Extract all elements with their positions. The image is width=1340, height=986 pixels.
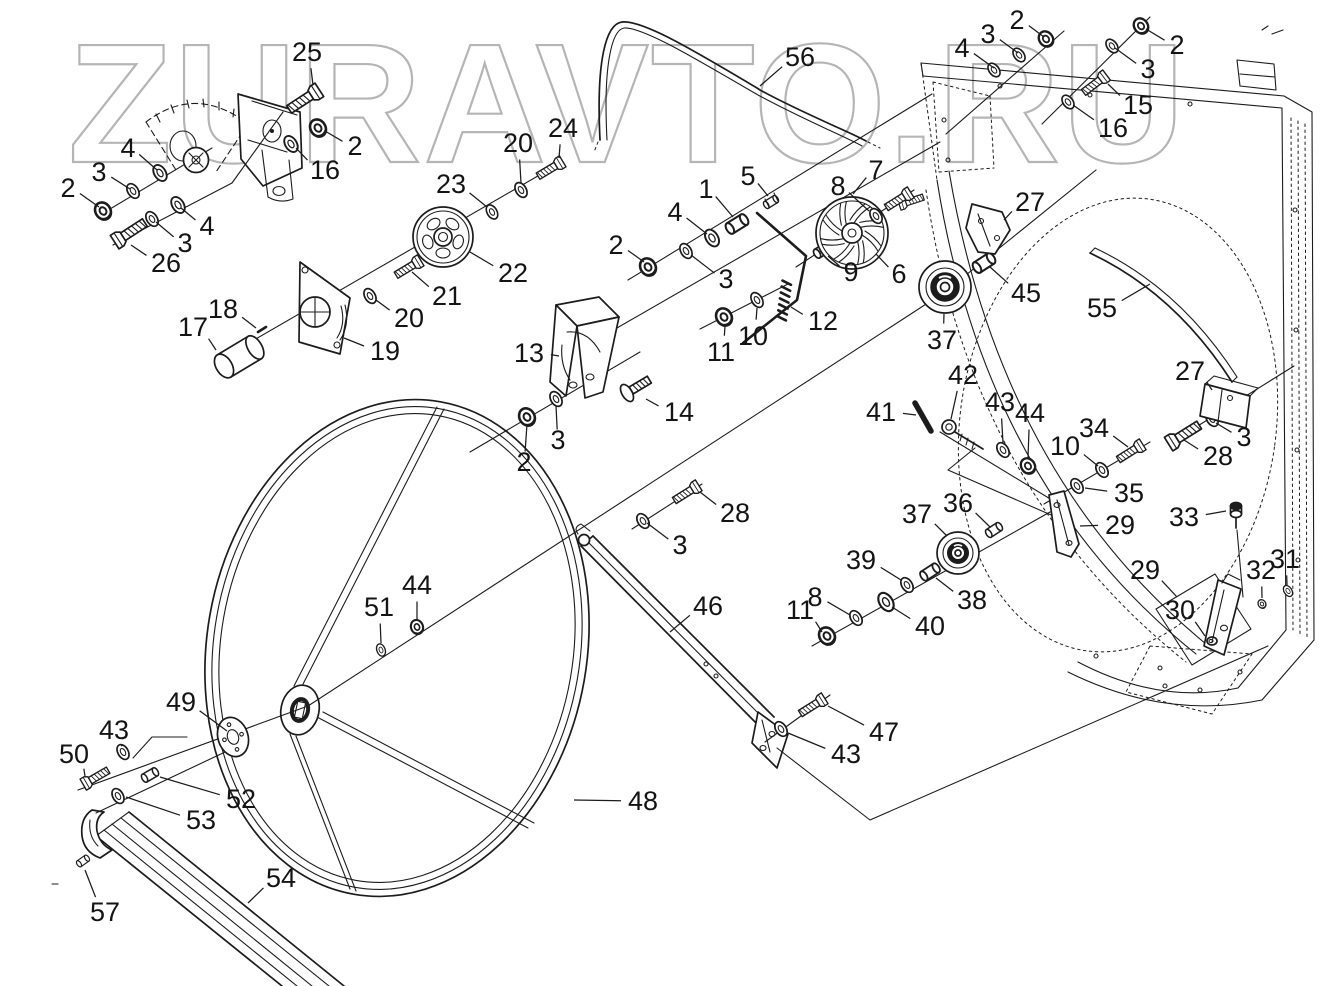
callout-34: 34 bbox=[1079, 413, 1109, 443]
callout-4: 4 bbox=[954, 33, 969, 63]
callout-41: 41 bbox=[866, 397, 896, 427]
bar-foot-bracket bbox=[752, 712, 788, 768]
bolt-26 bbox=[110, 216, 149, 249]
callout-leader-34 bbox=[1113, 436, 1128, 447]
callout-40: 40 bbox=[915, 611, 945, 641]
callout-43: 43 bbox=[99, 715, 129, 745]
pin-18 bbox=[258, 327, 266, 332]
callout-43: 43 bbox=[831, 739, 861, 769]
callout-3: 3 bbox=[672, 530, 687, 560]
callout-48: 48 bbox=[628, 786, 658, 816]
callout-20: 20 bbox=[394, 303, 424, 333]
callout-leader-43 bbox=[1002, 418, 1003, 443]
callout-28: 28 bbox=[720, 498, 750, 528]
frame-notch bbox=[1237, 60, 1276, 90]
bolt-57 bbox=[75, 854, 90, 868]
callout-leader-41 bbox=[903, 413, 916, 415]
callout-49: 49 bbox=[166, 687, 196, 717]
callout-leader-45 bbox=[990, 267, 1008, 283]
bolt-28 bbox=[1164, 418, 1203, 451]
callout-leader-54 bbox=[248, 888, 263, 903]
bearing-pulley-37 bbox=[919, 261, 971, 313]
bolt-47 bbox=[797, 693, 828, 719]
callout-22: 22 bbox=[498, 258, 528, 288]
corner-marks bbox=[1262, 26, 1283, 34]
parts-diagram-canvas: ZURAVTO.RU bbox=[0, 0, 1340, 986]
callout-leader-8 bbox=[827, 602, 850, 615]
alignment-lines bbox=[777, 646, 1268, 820]
callout-leader-12 bbox=[791, 307, 803, 314]
callout-leader-52 bbox=[160, 777, 220, 795]
callout-leader-36 bbox=[976, 513, 990, 527]
callout-50: 50 bbox=[59, 739, 89, 769]
callout-33: 33 bbox=[1169, 502, 1199, 532]
callout-4: 4 bbox=[120, 133, 135, 163]
callout-42: 42 bbox=[948, 360, 978, 390]
pulley-22 bbox=[413, 207, 473, 267]
bushing-45 bbox=[971, 252, 997, 275]
callout-51: 51 bbox=[364, 592, 394, 622]
nut-32 bbox=[1256, 598, 1267, 610]
callout-leader-39 bbox=[881, 567, 901, 580]
callout-3: 3 bbox=[550, 425, 565, 455]
callout-18: 18 bbox=[208, 294, 238, 324]
callout-27: 27 bbox=[1015, 187, 1045, 217]
callout-53: 53 bbox=[186, 805, 216, 835]
callout-leader-20 bbox=[376, 300, 390, 310]
callout-25: 25 bbox=[292, 37, 322, 67]
callout-30: 30 bbox=[1165, 595, 1195, 625]
callout-leader-53 bbox=[126, 797, 180, 815]
bolt-28 bbox=[671, 480, 702, 506]
bolt-21 bbox=[393, 255, 424, 281]
callout-29: 29 bbox=[1130, 555, 1160, 585]
callout-56: 56 bbox=[785, 42, 815, 72]
spacer-1 bbox=[724, 213, 750, 236]
callout-9: 9 bbox=[843, 257, 858, 287]
callout-leader-44 bbox=[1028, 429, 1029, 458]
washer-20 bbox=[361, 286, 378, 305]
callout-7: 7 bbox=[868, 155, 883, 185]
callout-6: 6 bbox=[891, 259, 906, 289]
callout-47: 47 bbox=[869, 717, 899, 747]
callout-10: 10 bbox=[738, 321, 768, 351]
callout-leader-22 bbox=[470, 252, 493, 266]
ring-40 bbox=[875, 590, 897, 614]
callout-leader-51 bbox=[380, 623, 381, 643]
callout-10: 10 bbox=[1050, 431, 1080, 461]
callout-28: 28 bbox=[1203, 441, 1233, 471]
callout-36: 36 bbox=[943, 488, 973, 518]
hub-disc-49 bbox=[213, 713, 254, 760]
callout-leader-57 bbox=[85, 870, 96, 897]
callout-17: 17 bbox=[178, 312, 208, 342]
callout-14: 14 bbox=[664, 397, 694, 427]
callout-leader-29 bbox=[1080, 525, 1098, 526]
callout-1: 1 bbox=[698, 174, 713, 204]
callout-12: 12 bbox=[808, 306, 838, 336]
callout-leader-17 bbox=[209, 339, 216, 350]
washer-53 bbox=[109, 786, 126, 805]
eyebolt-42 bbox=[942, 420, 956, 434]
callout-leader-48 bbox=[574, 800, 621, 801]
callout-leader-50 bbox=[84, 769, 85, 776]
callout-leader-26 bbox=[131, 245, 146, 255]
spoke bbox=[317, 712, 534, 828]
nut-44 bbox=[1018, 456, 1038, 477]
carriage-bolt-14 bbox=[618, 371, 654, 403]
callout-39: 39 bbox=[846, 545, 876, 575]
callout-2: 2 bbox=[516, 447, 531, 477]
callout-leader-35 bbox=[1085, 488, 1107, 491]
callout-11: 11 bbox=[786, 595, 814, 625]
callout-16: 16 bbox=[310, 155, 340, 185]
callout-leader-43 bbox=[788, 733, 825, 748]
callout-21: 21 bbox=[432, 281, 462, 311]
callout-leader-2 bbox=[628, 250, 644, 262]
page: ZURAVTO.RU bbox=[0, 0, 1340, 986]
callout-leader-37 bbox=[935, 524, 947, 536]
callout-leader-19 bbox=[344, 338, 364, 346]
nut-11 bbox=[713, 305, 735, 328]
callout-leader-27 bbox=[1004, 211, 1012, 220]
callout-leader-28 bbox=[1184, 440, 1198, 449]
callout-2: 2 bbox=[608, 230, 623, 260]
callout-23: 23 bbox=[436, 169, 466, 199]
callout-26: 26 bbox=[151, 248, 181, 278]
callout-2: 2 bbox=[60, 173, 75, 203]
callout-4: 4 bbox=[667, 197, 682, 227]
callout-3: 3 bbox=[980, 19, 995, 49]
callout-3: 3 bbox=[91, 157, 106, 187]
bearing-pulley-37 bbox=[937, 532, 979, 574]
callout-16: 16 bbox=[1098, 113, 1128, 143]
callout-37: 37 bbox=[927, 325, 957, 355]
callout-27: 27 bbox=[1175, 356, 1205, 386]
hook-bracket bbox=[82, 810, 112, 858]
callout-leader-10 bbox=[1084, 455, 1098, 466]
callout-leader-30 bbox=[1195, 622, 1205, 636]
callout-leader-3 bbox=[156, 222, 174, 237]
callout-leader-14 bbox=[646, 399, 659, 406]
callout-35: 35 bbox=[1114, 478, 1144, 508]
spoke bbox=[290, 734, 356, 891]
washer-43 bbox=[114, 742, 131, 761]
bracket-27 bbox=[966, 204, 1010, 254]
callout-57: 57 bbox=[90, 897, 120, 927]
callout-leader-3 bbox=[647, 523, 668, 539]
callout-leader-40 bbox=[892, 607, 910, 619]
callout-leader-21 bbox=[412, 272, 429, 287]
callout-44: 44 bbox=[1015, 398, 1045, 428]
callout-3: 3 bbox=[1236, 422, 1251, 452]
washer-3 bbox=[677, 241, 694, 260]
bolt-33 bbox=[1231, 503, 1242, 518]
callout-leader-43 bbox=[121, 745, 123, 746]
callout-38: 38 bbox=[957, 585, 987, 615]
callout-13: 13 bbox=[514, 338, 544, 368]
spoke bbox=[294, 407, 444, 688]
spring-pin-41 bbox=[915, 403, 931, 431]
callout-2: 2 bbox=[1169, 30, 1184, 60]
callout-8: 8 bbox=[830, 171, 845, 201]
callout-11: 11 bbox=[707, 337, 735, 367]
callout-leader-6 bbox=[876, 254, 888, 267]
callout-46: 46 bbox=[693, 591, 723, 621]
washer-43 bbox=[994, 440, 1011, 459]
callout-20: 20 bbox=[503, 128, 533, 158]
spacer-52 bbox=[140, 767, 160, 784]
washer-3 bbox=[634, 511, 651, 530]
ring-39 bbox=[898, 575, 915, 594]
callout-29: 29 bbox=[1105, 510, 1135, 540]
washer-10 bbox=[1093, 460, 1110, 479]
callout-leader-18 bbox=[242, 317, 256, 328]
callout-31: 31 bbox=[1270, 544, 1300, 574]
nut-2 bbox=[92, 199, 114, 222]
bolt-34 bbox=[1115, 439, 1146, 465]
reel-axle-line bbox=[308, 295, 940, 706]
washer-35 bbox=[1068, 476, 1085, 495]
callout-43: 43 bbox=[985, 387, 1015, 417]
callout-5: 5 bbox=[740, 161, 755, 191]
washer-10 bbox=[748, 290, 765, 309]
callout-leader-4 bbox=[181, 208, 195, 220]
callout-leader-28 bbox=[700, 492, 716, 505]
scraper-bar-54 bbox=[96, 812, 344, 986]
callout-45: 45 bbox=[1011, 278, 1041, 308]
callout-2: 2 bbox=[347, 131, 362, 161]
handle-grip-17 bbox=[210, 333, 267, 382]
callout-2: 2 bbox=[1009, 5, 1024, 35]
callout-leader-55 bbox=[1122, 284, 1150, 301]
watermark-text: ZURAVTO.RU bbox=[68, 9, 1187, 199]
callout-leader-33 bbox=[1206, 511, 1226, 515]
callout-leader-47 bbox=[828, 706, 864, 725]
callout-leader-42 bbox=[951, 391, 957, 419]
callout-3: 3 bbox=[1140, 54, 1155, 84]
callout-24: 24 bbox=[548, 113, 578, 143]
callout-55: 55 bbox=[1087, 293, 1117, 323]
callout-leader-10 bbox=[756, 308, 757, 320]
callout-37: 37 bbox=[902, 499, 932, 529]
callout-leader-4 bbox=[687, 218, 707, 234]
callout-leader-38 bbox=[936, 578, 953, 591]
callout-44: 44 bbox=[402, 570, 432, 600]
bar-eyelet bbox=[579, 535, 590, 546]
callout-leader-11 bbox=[724, 326, 725, 336]
callout-19: 19 bbox=[370, 336, 400, 366]
callout-4: 4 bbox=[199, 211, 214, 241]
callout-54: 54 bbox=[266, 863, 296, 893]
callout-52: 52 bbox=[226, 784, 256, 814]
nut-44 bbox=[409, 618, 425, 636]
callout-leader-3 bbox=[691, 255, 714, 273]
callout-3: 3 bbox=[718, 264, 733, 294]
washer-4 bbox=[702, 227, 722, 249]
callout-leader-1 bbox=[716, 197, 733, 217]
